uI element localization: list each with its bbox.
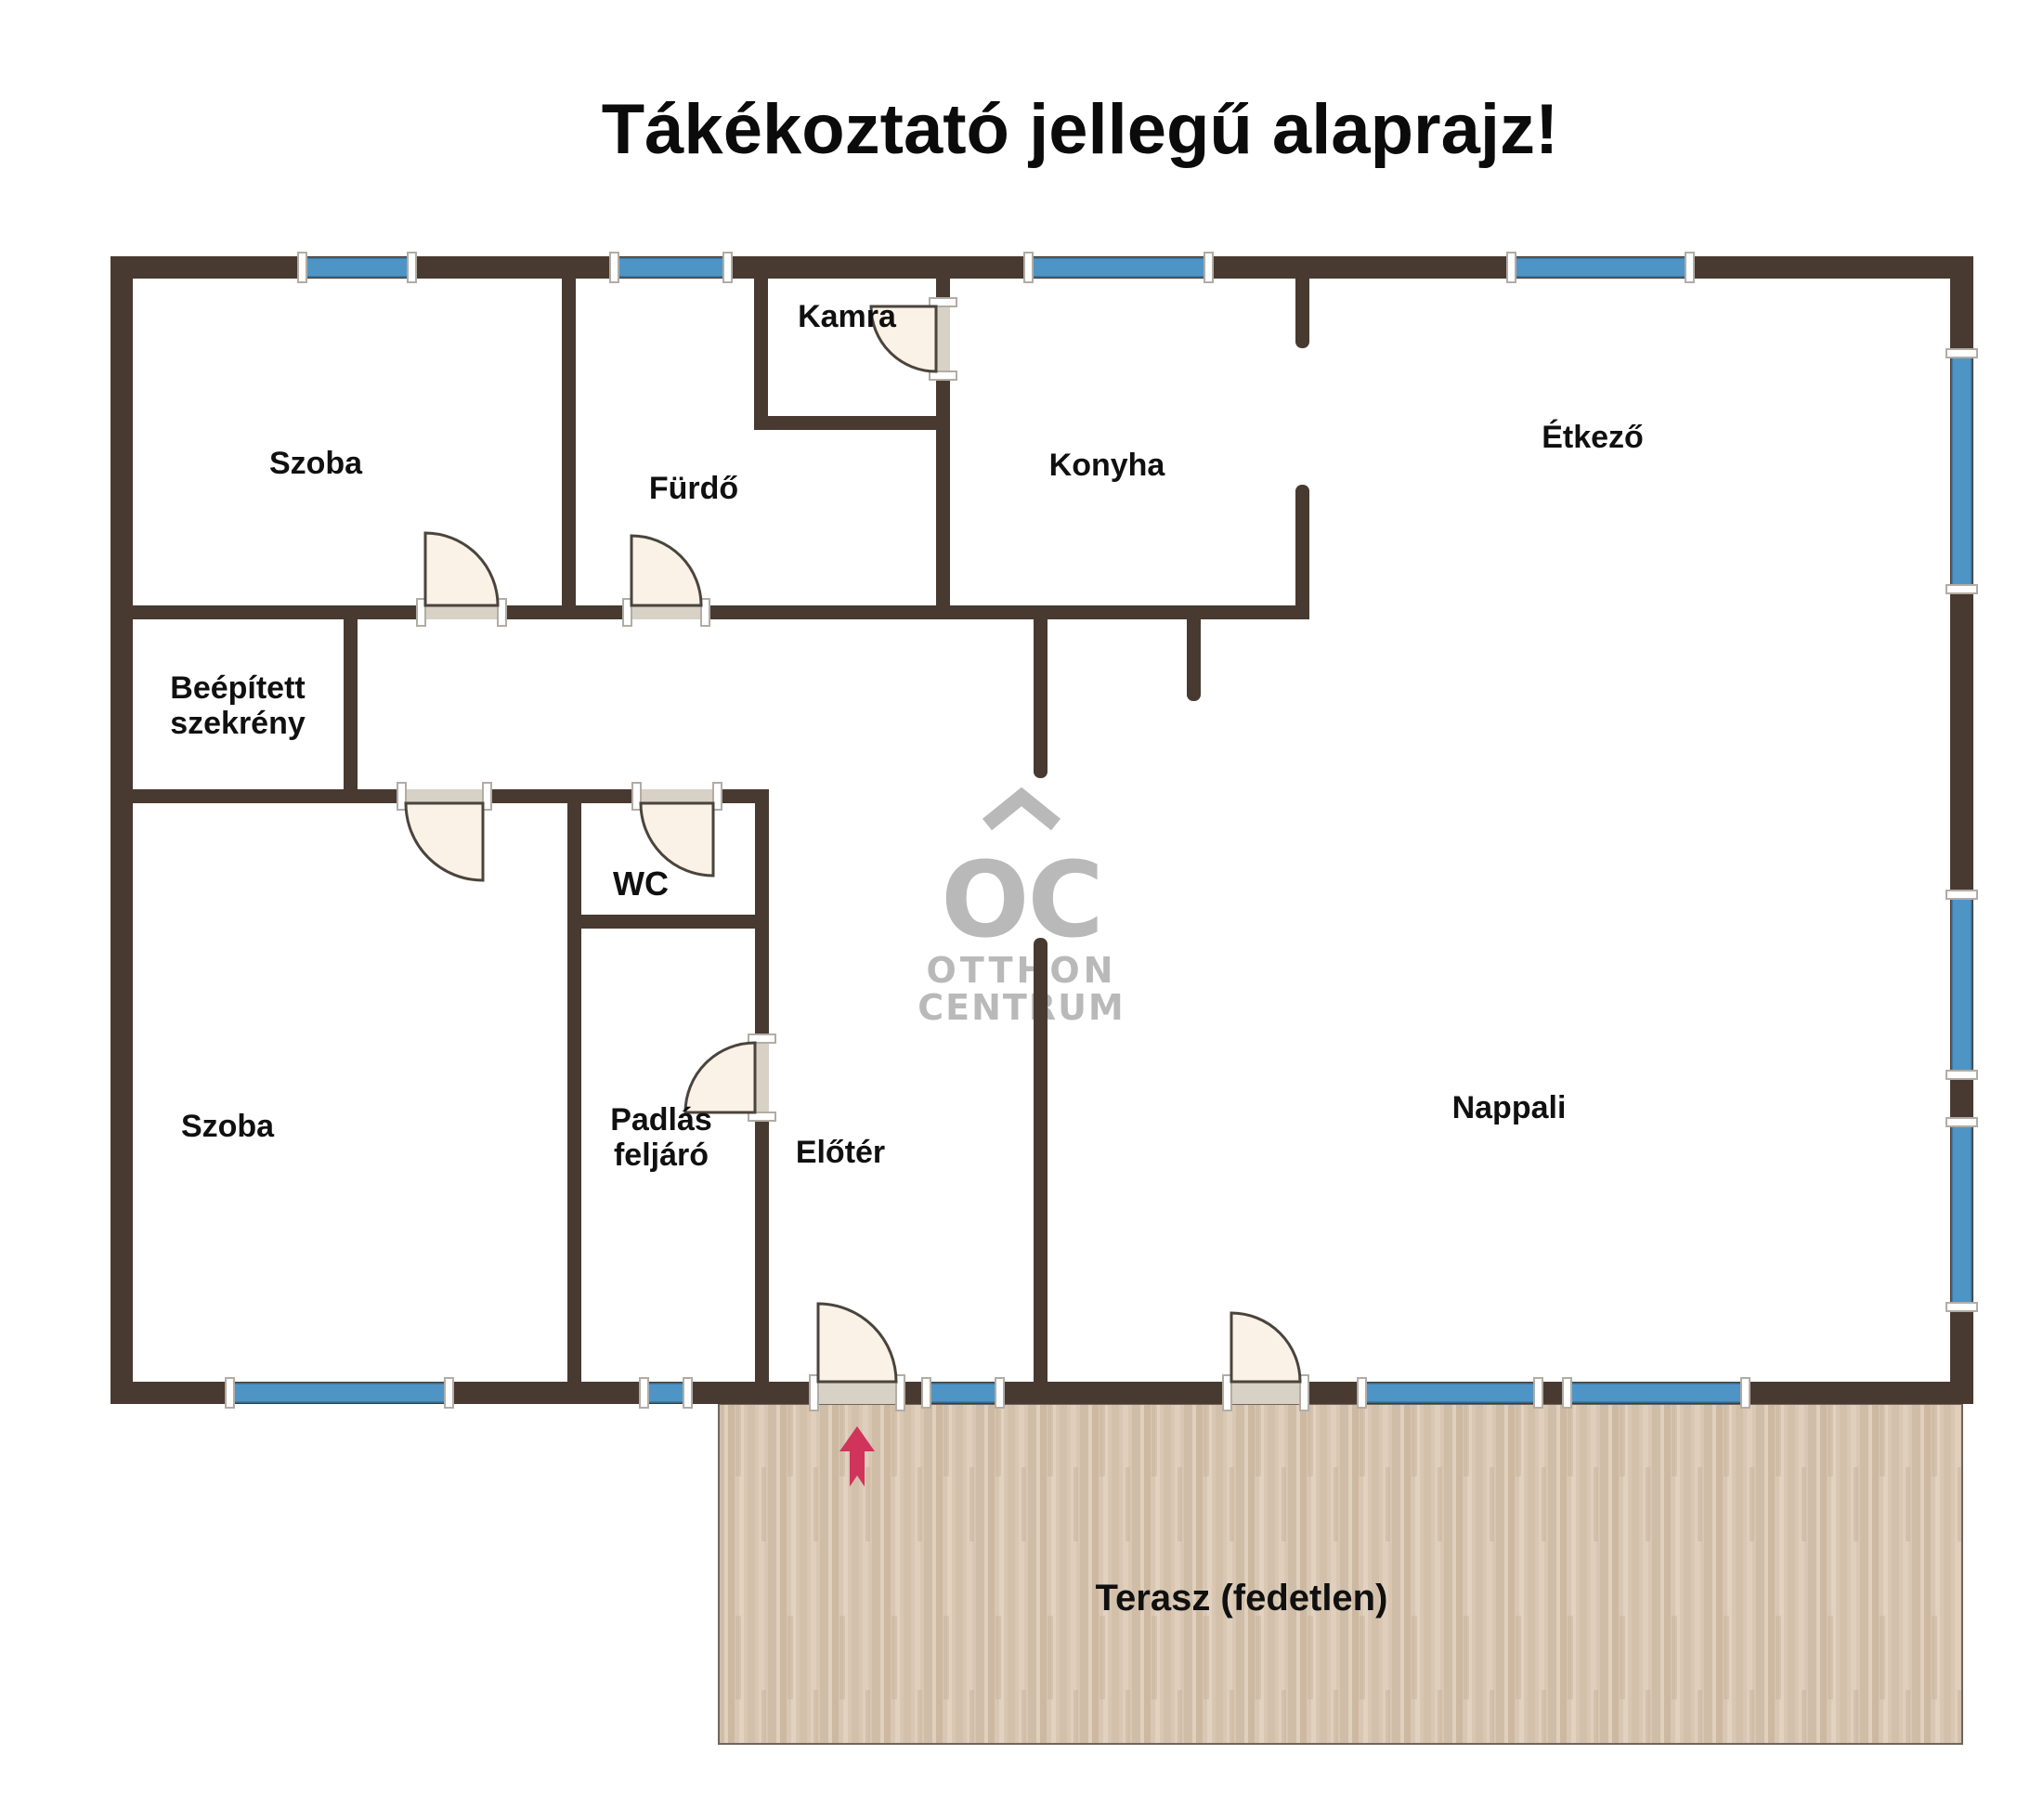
door-szoba-bottom-arc bbox=[406, 803, 483, 880]
room-szoba-top-label: Szoba bbox=[269, 446, 363, 481]
interior-wall bbox=[1295, 485, 1309, 619]
door-jamb bbox=[1741, 1378, 1750, 1408]
door-jamb bbox=[610, 253, 618, 282]
room-etkezo-label: Étkező bbox=[1542, 420, 1644, 455]
window bbox=[648, 1384, 683, 1402]
door-threshold bbox=[818, 1382, 896, 1404]
door-szoba-top-arc bbox=[425, 533, 498, 605]
logo-centrum-text: CENTRUM bbox=[917, 987, 1126, 1028]
door-jamb bbox=[640, 1378, 648, 1408]
door-jamb bbox=[1946, 585, 1977, 593]
door-jamb bbox=[1024, 253, 1033, 282]
door-jamb bbox=[683, 1378, 692, 1408]
interior-wall bbox=[483, 789, 641, 803]
logo-otthon-text: OTTHON bbox=[927, 950, 1117, 991]
door-threshold bbox=[425, 605, 498, 619]
openings bbox=[226, 253, 1977, 1410]
interior-wall bbox=[562, 279, 576, 619]
walls bbox=[111, 256, 1973, 1404]
door-jamb bbox=[1946, 1118, 1977, 1126]
door-jamb bbox=[723, 253, 732, 282]
logo-chevron-icon bbox=[987, 797, 1056, 825]
door-jamb bbox=[445, 1378, 453, 1408]
room-wc-label: WC bbox=[613, 864, 669, 903]
interior-wall bbox=[754, 416, 949, 430]
room-beepitett-2-label: szekrény bbox=[170, 706, 306, 741]
window bbox=[930, 1384, 995, 1402]
interior-wall bbox=[1034, 938, 1048, 1393]
door-jamb bbox=[1946, 1071, 1977, 1079]
window bbox=[1952, 357, 1971, 585]
interior-wall bbox=[133, 605, 425, 619]
terrace-floor bbox=[719, 1404, 1962, 1744]
interior-wall bbox=[1034, 608, 1048, 778]
window bbox=[306, 258, 408, 277]
room-furdo-label: Fürdő bbox=[649, 471, 738, 506]
doors bbox=[406, 306, 1300, 1382]
window bbox=[234, 1384, 445, 1402]
floor-plan-page: Tákékoztató jellegű alaprajz! OCOTTHONCE… bbox=[0, 0, 2043, 1820]
door-jamb bbox=[1204, 253, 1213, 282]
door-jamb bbox=[298, 253, 306, 282]
interior-wall bbox=[755, 789, 769, 1043]
door-threshold bbox=[755, 1043, 769, 1112]
room-beepitett-1-label: Beépített bbox=[170, 670, 305, 706]
interior-wall bbox=[567, 915, 769, 929]
door-jamb bbox=[1946, 890, 1977, 899]
room-nappali-label: Nappali bbox=[1452, 1090, 1567, 1125]
door-threshold bbox=[641, 789, 713, 803]
door-threshold bbox=[1231, 1382, 1300, 1404]
exterior-wall bbox=[111, 256, 133, 1404]
door-jamb bbox=[922, 1378, 930, 1408]
room-szoba-bottom-label: Szoba bbox=[181, 1109, 275, 1144]
door-jamb bbox=[408, 253, 416, 282]
floor-plan-svg: Tákékoztató jellegű alaprajz! OCOTTHONCE… bbox=[0, 0, 2043, 1820]
door-threshold bbox=[936, 306, 950, 371]
window bbox=[1366, 1384, 1534, 1402]
interior-wall bbox=[1295, 271, 1309, 348]
interior-wall bbox=[755, 1112, 769, 1404]
window bbox=[1952, 1126, 1971, 1303]
window bbox=[1516, 258, 1685, 277]
door-jamb bbox=[995, 1378, 1004, 1408]
logo-oc-text: OC bbox=[941, 840, 1101, 961]
room-kamra-label: Kamra bbox=[798, 299, 897, 334]
window bbox=[1033, 258, 1204, 277]
room-konyha-label: Konyha bbox=[1049, 448, 1166, 483]
interior-wall bbox=[1187, 608, 1201, 701]
door-jamb bbox=[1685, 253, 1694, 282]
door-jamb bbox=[1534, 1378, 1542, 1408]
plan-title: Tákékoztató jellegű alaprajz! bbox=[602, 90, 1559, 169]
window bbox=[618, 258, 723, 277]
door-jamb bbox=[1563, 1378, 1571, 1408]
terrace bbox=[719, 1404, 1962, 1744]
window bbox=[1952, 899, 1971, 1071]
door-threshold bbox=[631, 605, 701, 619]
interior-wall bbox=[936, 371, 950, 619]
interior-wall bbox=[344, 605, 358, 803]
room-padlas-1-label: Padlás bbox=[610, 1102, 712, 1137]
door-entrance-arc bbox=[818, 1304, 896, 1382]
room-eloter-label: Előtér bbox=[796, 1135, 885, 1170]
room-padlas-2-label: feljáró bbox=[614, 1137, 709, 1173]
oc-watermark: OCOTTHONCENTRUM bbox=[917, 797, 1126, 1028]
door-jamb bbox=[226, 1378, 234, 1408]
room-terasz-label: Terasz (fedetlen) bbox=[1096, 1578, 1388, 1618]
door-furdo-arc bbox=[631, 536, 701, 605]
door-jamb bbox=[1946, 1303, 1977, 1311]
interior-wall bbox=[754, 279, 768, 416]
door-threshold bbox=[406, 789, 483, 803]
door-jamb bbox=[1946, 349, 1977, 357]
interior-wall bbox=[133, 789, 406, 803]
interior-wall bbox=[567, 789, 581, 1404]
interior-wall bbox=[701, 605, 1309, 619]
door-jamb bbox=[1358, 1378, 1366, 1408]
door-jamb bbox=[1507, 253, 1516, 282]
door-terasz-arc bbox=[1231, 1313, 1300, 1382]
window bbox=[1571, 1384, 1741, 1402]
